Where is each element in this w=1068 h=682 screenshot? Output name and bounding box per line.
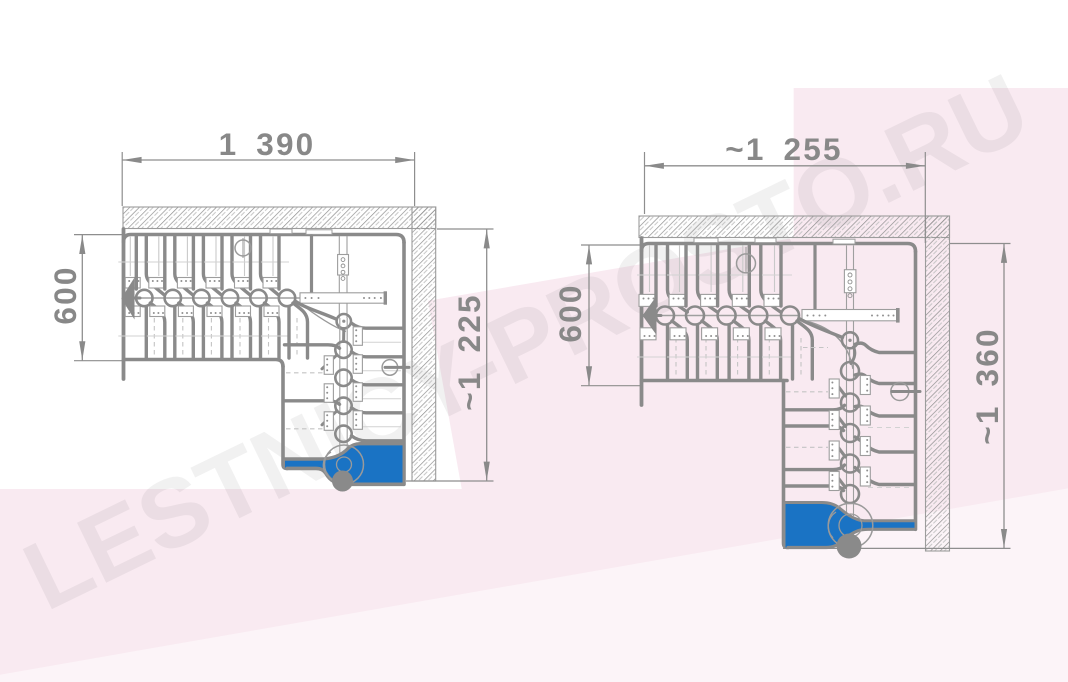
svg-text:1 390: 1 390 <box>219 126 316 162</box>
svg-text:~1 360: ~1 360 <box>969 327 1005 444</box>
svg-text:600: 600 <box>552 283 588 342</box>
svg-text:~1 225: ~1 225 <box>451 293 487 410</box>
svg-text:600: 600 <box>47 265 83 324</box>
svg-text:~1 255: ~1 255 <box>725 131 842 167</box>
